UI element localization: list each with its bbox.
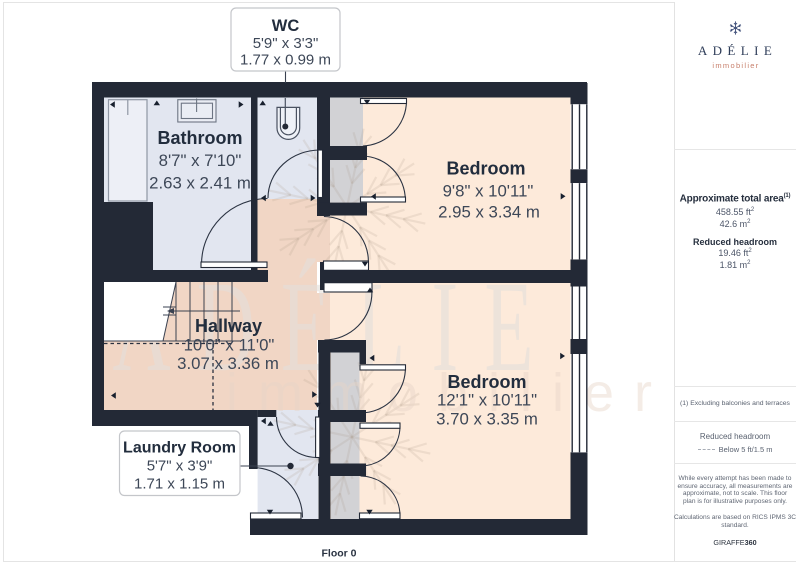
svg-text:12'1" x 10'11": 12'1" x 10'11" — [437, 391, 537, 410]
svg-text:3.07 x 3.36 m: 3.07 x 3.36 m — [177, 354, 279, 373]
svg-text:10'0" x 11'0": 10'0" x 11'0" — [184, 336, 275, 355]
svg-text:2.95 x 3.34 m: 2.95 x 3.34 m — [438, 203, 540, 222]
svg-text:9'8" x 10'11": 9'8" x 10'11" — [443, 182, 534, 201]
svg-text:1.71 x 1.15 m: 1.71 x 1.15 m — [134, 476, 225, 493]
svg-text:5'9" x 3'3": 5'9" x 3'3" — [253, 35, 319, 52]
svg-text:8'7" x 7'10": 8'7" x 7'10" — [159, 151, 242, 170]
svg-text:Hallway: Hallway — [195, 316, 262, 336]
svg-text:5'7" x 3'9": 5'7" x 3'9" — [147, 458, 213, 475]
svg-text:2.63 x 2.41 m: 2.63 x 2.41 m — [149, 174, 251, 193]
svg-text:Floor 0: Floor 0 — [321, 548, 356, 560]
svg-text:WC: WC — [272, 17, 300, 35]
svg-text:Bedroom: Bedroom — [447, 372, 526, 392]
svg-text:Bedroom: Bedroom — [446, 159, 525, 179]
svg-text:Bathroom: Bathroom — [158, 128, 243, 148]
svg-text:Laundry Room: Laundry Room — [123, 440, 236, 457]
svg-text:3.70 x 3.35 m: 3.70 x 3.35 m — [436, 410, 538, 429]
svg-text:1.77 x 0.99 m: 1.77 x 0.99 m — [240, 52, 331, 69]
